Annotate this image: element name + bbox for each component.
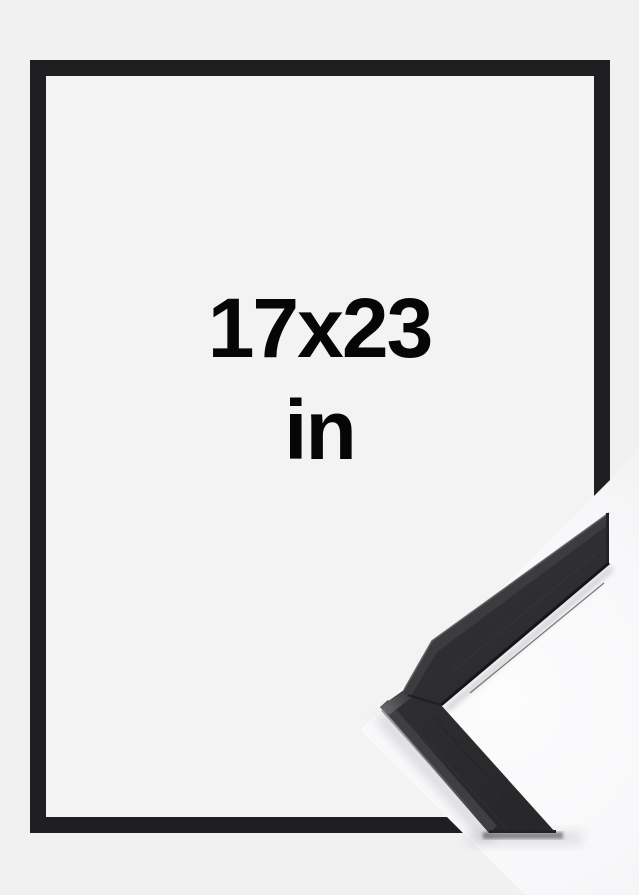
product-image: 17x23 in — [0, 0, 639, 895]
size-unit-text: in — [0, 379, 639, 481]
size-label: 17x23 in — [0, 277, 639, 481]
size-dimensions-text: 17x23 — [0, 277, 639, 379]
moulding-bottom-cut-edge — [489, 830, 556, 833]
moulding-right-cut-edge — [606, 513, 609, 563]
moulding-shadow-bottom — [483, 832, 563, 839]
